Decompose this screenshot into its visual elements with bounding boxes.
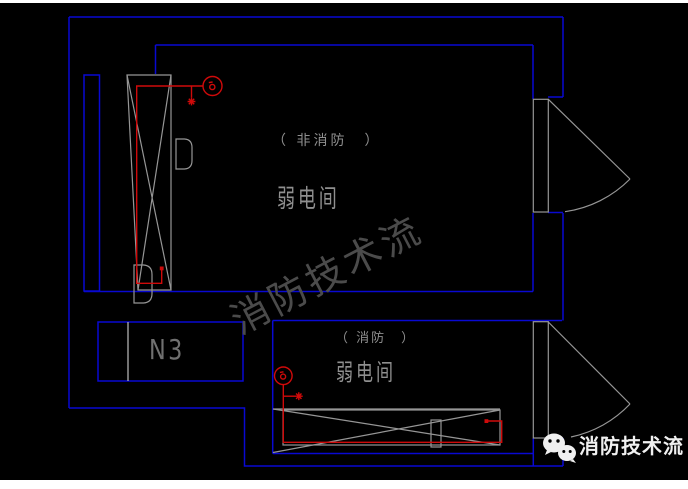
logo-text: 消防技术流 [579, 436, 684, 456]
outer-wall-bottom-step [69, 408, 563, 466]
wiring-top [137, 77, 222, 284]
door2-jamb [533, 322, 548, 438]
wechat-icon [542, 430, 580, 466]
outer-walls [69, 17, 563, 466]
room2-name-label: 弱电间 [336, 362, 396, 385]
wire-terminal-dot [485, 419, 489, 423]
room1-name-label: 弱电间 [277, 186, 340, 211]
door-top [533, 99, 630, 212]
door1-swing-arc [565, 179, 630, 212]
wire-terminal-dot [160, 267, 164, 271]
door1-jamb [533, 99, 548, 212]
detector-tag-tick [209, 82, 213, 83]
cabinet1-handle-icon [176, 139, 192, 169]
door-bottom [533, 322, 630, 438]
detector-tag-circle-icon [275, 367, 293, 385]
room-top-walls [84, 45, 533, 292]
detector-tag-glyph [210, 84, 215, 89]
door1-leaf [548, 99, 630, 179]
room-bottom-walls [273, 321, 562, 454]
wire-run-bottom [283, 385, 501, 443]
cabinet1-cross [127, 75, 171, 290]
detector-tag-circle-icon [203, 77, 222, 96]
wire-run-top [137, 86, 203, 283]
cabinet-bottom [273, 409, 500, 453]
n3-panel-label: N3 [149, 336, 185, 364]
junction-star-icon [295, 392, 303, 400]
detector-tag-tick [280, 372, 284, 373]
wall-pilaster-rect [84, 75, 100, 291]
room2-type-label: （ 消防 ） [335, 332, 416, 345]
junction-star-icon [188, 98, 196, 106]
cabinet2-cross [273, 409, 500, 453]
detector-tag-glyph [281, 374, 286, 379]
wechat-small-bubble [558, 445, 576, 463]
room1-type-label: （ 非消防 ） [272, 134, 381, 148]
door2-leaf [548, 322, 630, 404]
floor-plan-canvas: （ 非消防 ） 弱电间 （ 消防 ） 弱电间 N3 消防技术流 消防技术流 [0, 0, 688, 489]
